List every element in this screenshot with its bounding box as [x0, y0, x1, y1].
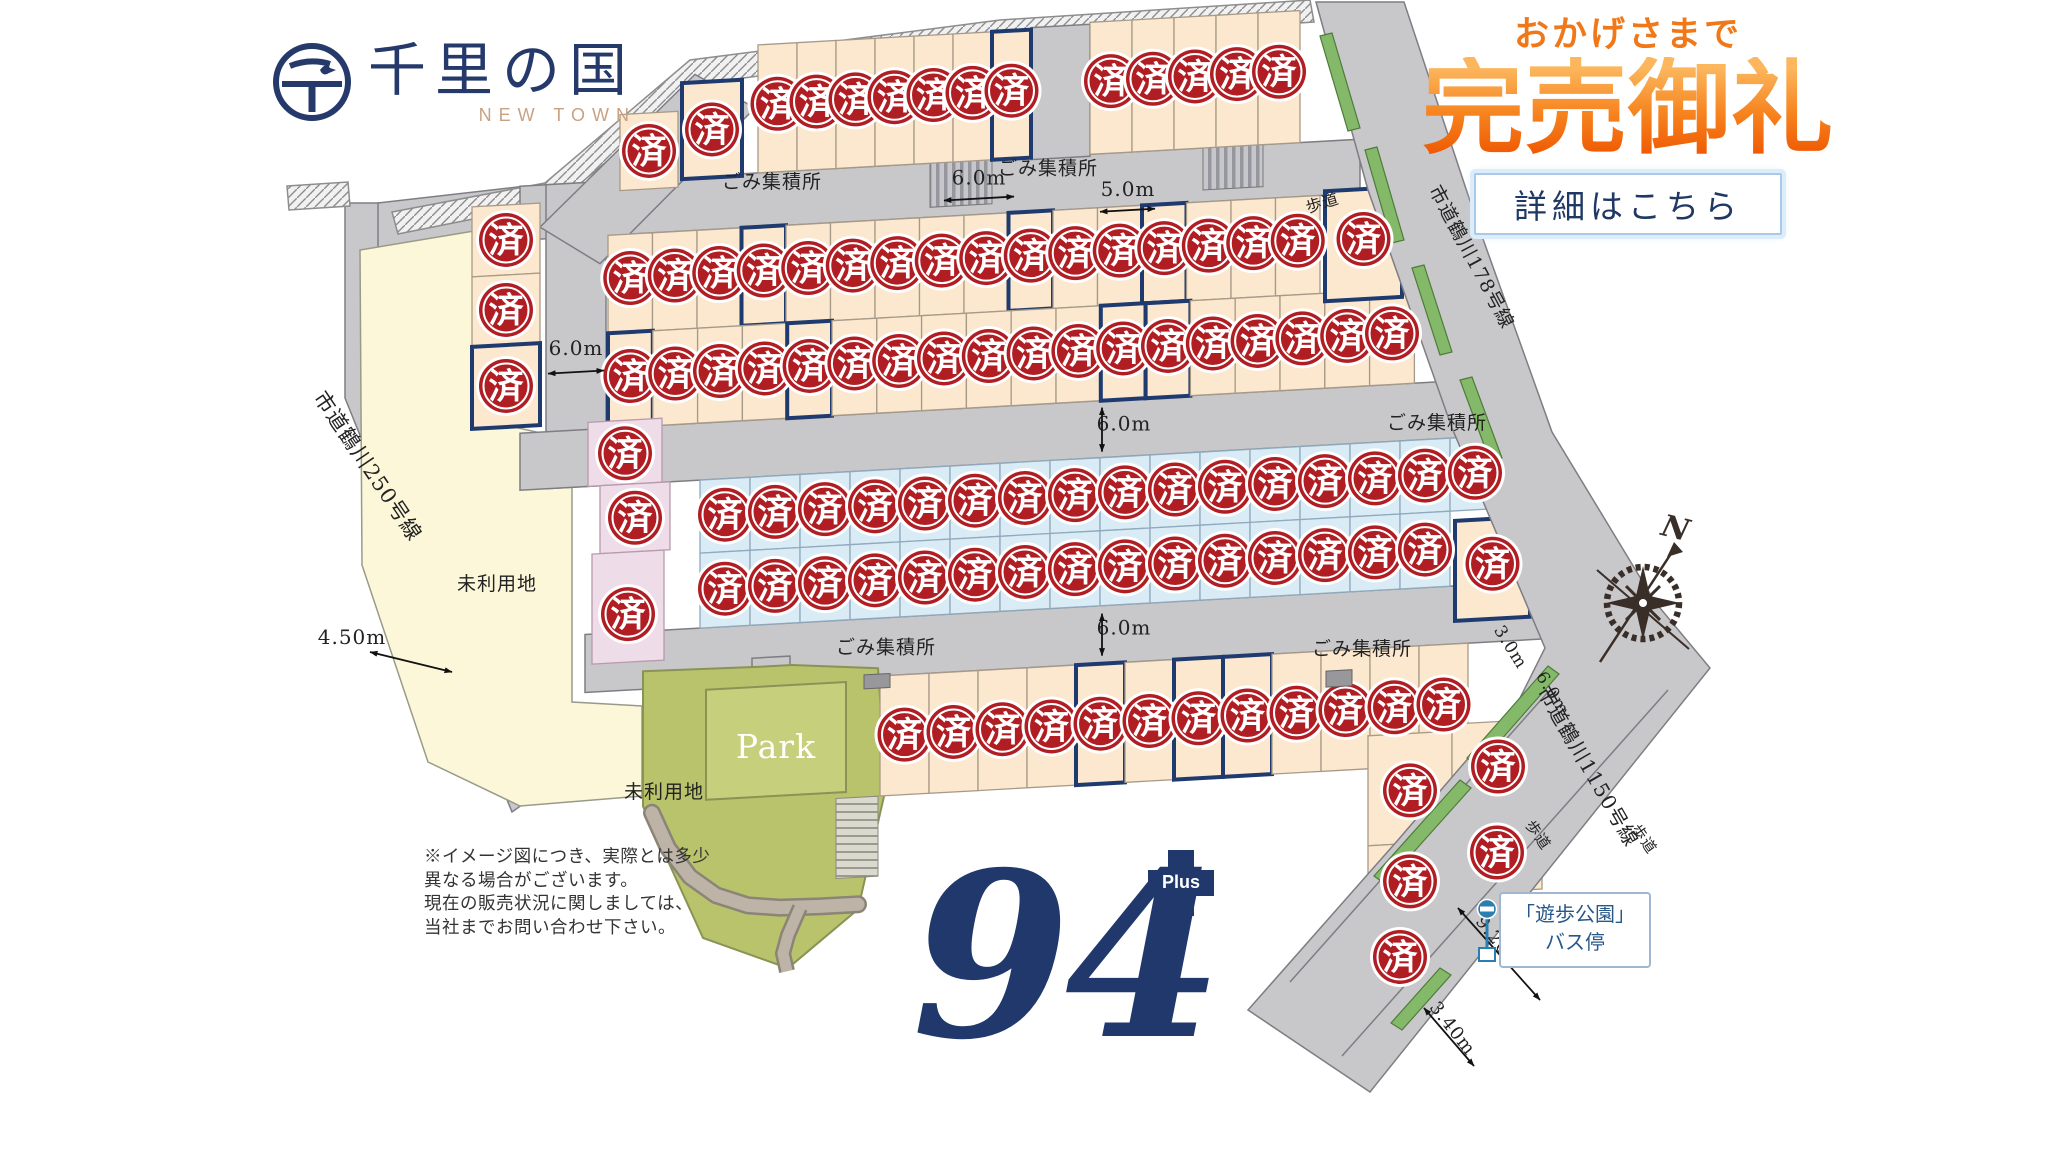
sold-badge-label: 済 — [1479, 833, 1515, 874]
map-label: Park — [736, 727, 816, 766]
sold-badge-label: 済 — [857, 487, 893, 528]
sold-badge-label: 済 — [1157, 470, 1193, 511]
sold-badge-label: 済 — [488, 290, 524, 331]
map-label: ごみ集積所 — [1312, 638, 1412, 660]
sold-badge-label: 済 — [994, 71, 1030, 112]
bus-stop-label: 「遊歩公園」 — [1515, 902, 1635, 926]
sold-badge-label: 済 — [1257, 464, 1293, 505]
compass-n-label: N — [1657, 508, 1695, 549]
soldout-banner: おかげさまで 完売御礼 詳細はこちら — [1408, 6, 1848, 235]
sold-badge-label: 済 — [1191, 226, 1227, 267]
map-label: 4.50m — [318, 625, 387, 649]
sold-badge-label: 済 — [791, 249, 827, 290]
bus-stop-base — [1479, 948, 1495, 961]
sold-badge-label: 済 — [1480, 747, 1516, 788]
sold-badge-label: 済 — [702, 254, 738, 295]
sold-badge-label: 済 — [837, 344, 873, 385]
sold-badge-label: 済 — [1330, 316, 1366, 357]
sold-badge-label: 済 — [857, 561, 893, 602]
sold-badge-label: 済 — [613, 259, 649, 300]
site-logo[interactable]: 千里の国 NEW TOWN — [270, 40, 636, 126]
sold-badge-label: 済 — [1157, 544, 1193, 585]
bus-stop-sign-bar — [1480, 907, 1494, 912]
sold-badge-label: 済 — [985, 710, 1021, 751]
sold-badge-label: 済 — [617, 498, 653, 539]
map-label: ごみ集積所 — [998, 158, 1098, 180]
sold-badge-label: 済 — [882, 341, 918, 382]
sold-badge-label: 済 — [1007, 552, 1043, 593]
sold-badge-label: 済 — [488, 366, 524, 407]
sold-badge-label: 済 — [1328, 691, 1364, 732]
map-label: 6.0m — [1097, 615, 1152, 639]
sold-badge-label: 済 — [746, 251, 782, 292]
sold-badge-label: 済 — [969, 239, 1005, 280]
sold-badge-label: 済 — [792, 346, 828, 387]
map-label: 6.0m — [1097, 411, 1152, 435]
sold-badge-label: 済 — [1377, 688, 1413, 729]
sold-badge-label: 済 — [1236, 224, 1272, 265]
sold-badge-label: 済 — [1147, 229, 1183, 270]
sold-badge-label: 済 — [1280, 221, 1316, 262]
sold-badge-label: 済 — [936, 712, 972, 753]
sold-badge-label: 済 — [1257, 538, 1293, 579]
sold-badge-label: 済 — [1195, 324, 1231, 365]
sold-badge-label: 済 — [907, 484, 943, 525]
logo-subtitle: NEW TOWN — [368, 105, 636, 126]
disclaimer: ※イメージ図につき、実際とは多少 異なる場合がございます。 現在の販売状況に関し… — [424, 846, 710, 940]
sold-badge-label: 済 — [1285, 319, 1321, 360]
sold-badge-label: 済 — [488, 220, 524, 261]
plus-badge-label: Plus — [1148, 872, 1214, 893]
sold-badge-label: 済 — [1057, 476, 1093, 517]
sold-badge-label: 済 — [1392, 771, 1428, 812]
sold-badge-label: 済 — [747, 349, 783, 390]
sold-badge-label: 済 — [1107, 547, 1143, 588]
sold-badge-label: 済 — [1374, 314, 1410, 355]
map-label: ごみ集積所 — [836, 637, 936, 659]
sold-badge-label: 済 — [1207, 541, 1243, 582]
sold-badge-label: 済 — [957, 481, 993, 522]
sold-badge-label: 済 — [1016, 334, 1052, 375]
sold-badge-label: 済 — [1261, 52, 1297, 93]
sold-badge-label: 済 — [1357, 533, 1393, 574]
logo-emblem-icon — [270, 40, 354, 124]
bus-stop-label: バス停 — [1545, 930, 1605, 954]
sold-badge-label: 済 — [657, 256, 693, 297]
sold-badge-label: 済 — [1061, 331, 1097, 372]
sold-badge-label: 済 — [1058, 234, 1094, 275]
sold-badge-label: 済 — [1083, 704, 1119, 745]
sold-badge-label: 済 — [1132, 701, 1168, 742]
sold-badge-label: 済 — [607, 434, 643, 475]
garbage-box — [1326, 670, 1352, 687]
sold-badge-label: 済 — [926, 339, 962, 380]
sold-badge-label: 済 — [694, 110, 730, 151]
sold-badge-label: 済 — [1457, 453, 1493, 494]
map-label: 5.0m — [1101, 177, 1156, 201]
sold-badge-label: 済 — [1382, 937, 1418, 978]
sold-badge-label: 済 — [1240, 321, 1276, 362]
sold-badge-label: 済 — [613, 357, 649, 398]
sold-badge-label: 済 — [1007, 478, 1043, 519]
disclaimer-line: 現在の販売状況に関しましては、 — [424, 893, 710, 917]
map-label: 6.0m — [549, 336, 604, 360]
sold-badge-label: 済 — [1426, 685, 1462, 726]
sold-badge-label: 済 — [757, 492, 793, 533]
sold-badge-label: 済 — [1181, 699, 1217, 740]
sold-badge-label: 済 — [887, 715, 923, 756]
sold-badge-label: 済 — [702, 351, 738, 392]
sold-badge-label: 済 — [1102, 231, 1138, 272]
map-label: 3.40m — [1425, 998, 1480, 1060]
sold-badge-label: 済 — [1307, 536, 1343, 577]
park-stairs — [836, 796, 878, 878]
sold-badge-label: 済 — [1107, 473, 1143, 514]
sold-badge-label: 済 — [1034, 707, 1070, 748]
sold-badge-label: 済 — [631, 131, 667, 172]
sold-badge-label: 済 — [924, 241, 960, 282]
disclaimer-line: ※イメージ図につき、実際とは多少 — [424, 846, 710, 870]
sold-badge-label: 済 — [658, 354, 694, 395]
details-button[interactable]: 詳細はこちら — [1474, 173, 1782, 235]
sold-badge-label: 済 — [835, 246, 871, 287]
map-label: 6.0m — [952, 166, 1007, 190]
sold-badge-label: 済 — [1057, 550, 1093, 591]
sold-badge-label: 済 — [1207, 467, 1243, 508]
map-label: ごみ集積所 — [1387, 412, 1487, 434]
sold-badge-label: 済 — [880, 244, 916, 285]
map-label: ごみ集積所 — [722, 171, 822, 193]
sold-badge-label: 済 — [1150, 326, 1186, 367]
garbage-box — [864, 674, 890, 689]
sold-badge-label: 済 — [807, 490, 843, 531]
sold-badge-label: 済 — [1106, 329, 1142, 370]
sold-badge-label: 済 — [957, 555, 993, 596]
sold-badge-label: 済 — [1407, 456, 1443, 497]
sold-badge-label: 済 — [1307, 462, 1343, 503]
sold-badge-label: 済 — [610, 595, 646, 636]
disclaimer-line: 異なる場合がございます。 — [424, 870, 710, 894]
sold-badge-label: 済 — [971, 336, 1007, 377]
sold-badge-label: 済 — [1346, 220, 1382, 261]
sold-badge-label: 済 — [757, 566, 793, 607]
sold-badge-label: 済 — [1475, 544, 1511, 585]
sold-badge-label: 済 — [907, 558, 943, 599]
sold-badge-label: 済 — [1392, 862, 1428, 903]
sold-badge-label: 済 — [707, 495, 743, 536]
sold-badge-label: 済 — [1013, 236, 1049, 277]
sold-badge-label: 済 — [1407, 530, 1443, 571]
sold-badge-label: 済 — [807, 564, 843, 605]
lot-count: 94 Plus — [912, 842, 1252, 1102]
sold-badge-label: 済 — [707, 569, 743, 610]
banner-title: 完売御礼 — [1408, 57, 1848, 161]
compass-hub — [1638, 598, 1649, 609]
plus-badge: Plus — [1148, 850, 1214, 916]
logo-title: 千里の国 — [368, 40, 636, 101]
map-label: 未利用地 — [457, 573, 537, 595]
sold-badge-label: 済 — [1230, 696, 1266, 737]
retaining-wall-west — [287, 182, 350, 210]
disclaimer-line: 当社までお問い合わせ下さい。 — [424, 917, 710, 941]
map-label: 未利用地 — [624, 781, 704, 803]
sold-badge-label: 済 — [1279, 693, 1315, 734]
sold-badge-label: 済 — [1357, 459, 1393, 500]
